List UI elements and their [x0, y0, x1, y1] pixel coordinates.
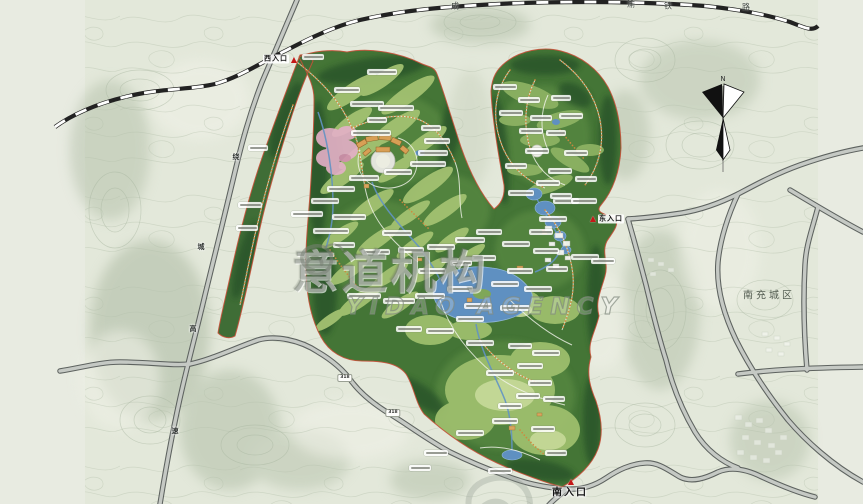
northeast-plaza — [531, 145, 543, 157]
map-artwork — [0, 0, 863, 504]
park-masterplan-map: 成渝铁路绕城高速318318南充城区西入口▲东入口▲南入口▲ 意道机构 YIDA… — [0, 0, 863, 504]
lake-island — [473, 289, 491, 299]
